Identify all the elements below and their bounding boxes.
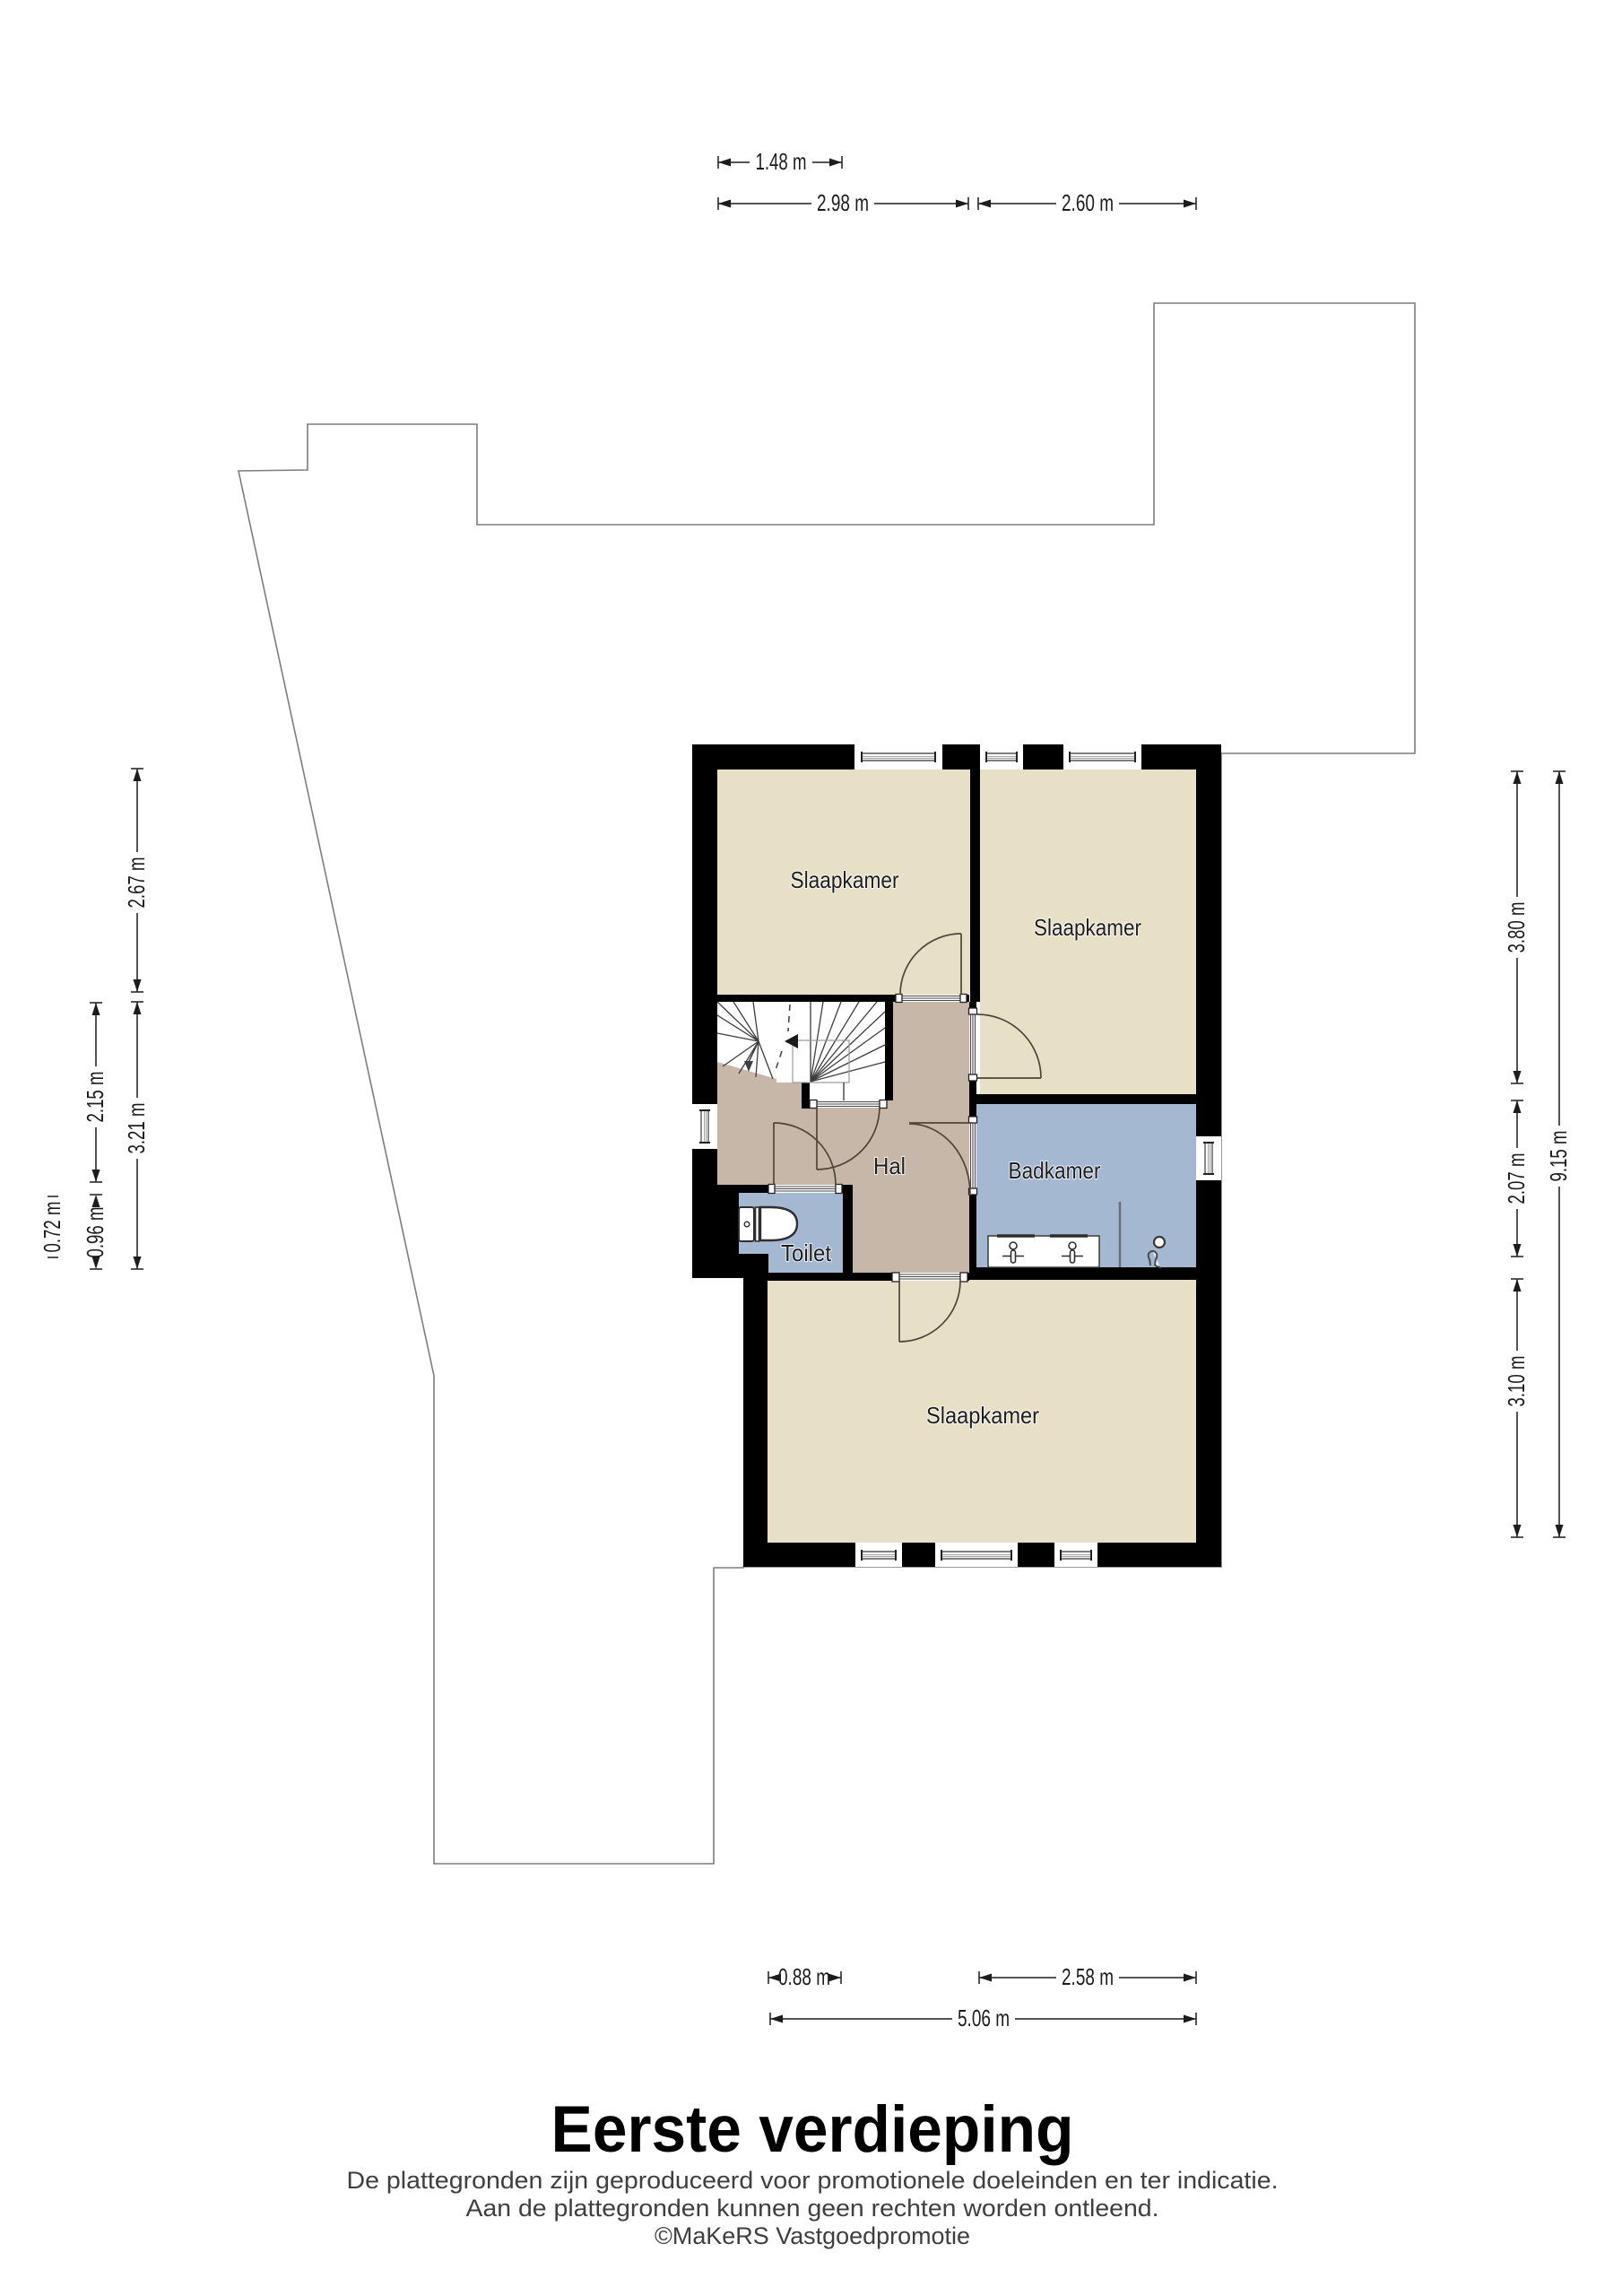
svg-text:1.48 m: 1.48 m xyxy=(756,148,807,175)
svg-text:0.96 m: 0.96 m xyxy=(82,1207,108,1258)
svg-text:Slaapkamer: Slaapkamer xyxy=(791,866,899,893)
svg-text:2.98 m: 2.98 m xyxy=(817,189,869,216)
svg-text:0.72 m: 0.72 m xyxy=(39,1202,65,1253)
svg-text:Toilet: Toilet xyxy=(781,1239,832,1266)
svg-text:2.58 m: 2.58 m xyxy=(1062,1963,1114,1990)
svg-text:De plattegronden zijn geproduc: De plattegronden zijn geproduceerd voor … xyxy=(347,2167,1279,2194)
svg-text:3.80 m: 3.80 m xyxy=(1503,902,1530,953)
svg-text:2.07 m: 2.07 m xyxy=(1503,1153,1530,1205)
svg-text:2.15 m: 2.15 m xyxy=(82,1072,108,1123)
svg-text:2.60 m: 2.60 m xyxy=(1062,189,1114,216)
svg-text:9.15 m: 9.15 m xyxy=(1545,1131,1572,1182)
svg-text:3.21 m: 3.21 m xyxy=(123,1103,150,1154)
svg-text:Hal: Hal xyxy=(873,1152,906,1179)
svg-text:©MaKeRS Vastgoedpromotie: ©MaKeRS Vastgoedpromotie xyxy=(655,2222,970,2249)
svg-text:Eerste verdieping: Eerste verdieping xyxy=(551,2093,1074,2166)
svg-text:Slaapkamer: Slaapkamer xyxy=(926,1402,1039,1429)
svg-text:0.88 m: 0.88 m xyxy=(778,1963,830,1990)
svg-text:2.67 m: 2.67 m xyxy=(123,857,150,909)
svg-text:Slaapkamer: Slaapkamer xyxy=(1034,914,1141,941)
svg-text:5.06 m: 5.06 m xyxy=(958,2005,1010,2031)
svg-text:Badkamer: Badkamer xyxy=(1009,1157,1101,1184)
svg-text:3.10 m: 3.10 m xyxy=(1503,1356,1530,1407)
svg-text:Aan de plattegronden kunnen ge: Aan de plattegronden kunnen geen rechten… xyxy=(466,2195,1159,2222)
